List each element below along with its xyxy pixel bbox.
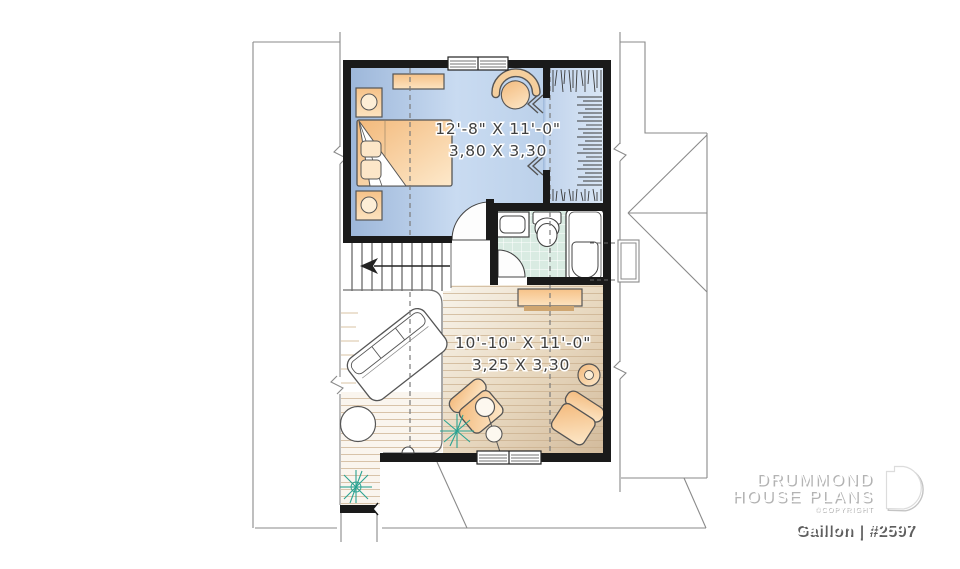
nightstand-top [356,88,382,117]
brand-line1: DRUMMOND [756,471,874,489]
bedroom-window [448,57,508,70]
pillow [361,160,381,179]
floor-plan-drawing: 12'-8" X 11'-0" 3,80 X 3,30 10'-10" X 11… [0,0,960,569]
brand-watermark: DRUMMOND DRUMMOND HOUSE PLANS HOUSE PLAN… [732,467,923,541]
console-shadow [524,306,574,311]
nightstand-bottom [356,191,382,220]
bedroom-dimension-imperial: 12'-8" X 11'-0" [435,120,561,138]
bathroom-vanity-sink [496,212,529,237]
brand-line2: HOUSE PLANS [732,488,874,506]
floor-plan-page: 12'-8" X 11'-0" 3,80 X 3,30 10'-10" X 11… [0,0,960,569]
dresser [393,74,444,89]
side-table [578,364,600,386]
bedroom-dimension-metric: 3,80 X 3,30 [449,142,547,160]
sofa [343,305,451,405]
living-room-dimension-metric: 3,25 X 3,30 [472,356,570,374]
plan-title: Gaillon | #2597 [795,522,915,539]
bathtub [566,209,604,283]
brand-copyright: ©COPYRIGHT [815,506,874,514]
living-room-window [477,451,541,464]
living-room-dimension-imperial: 10'-10" X 11'-0" [455,334,591,352]
drummond-d-icon [887,467,924,511]
round-table [341,407,376,442]
pillow [361,141,381,157]
